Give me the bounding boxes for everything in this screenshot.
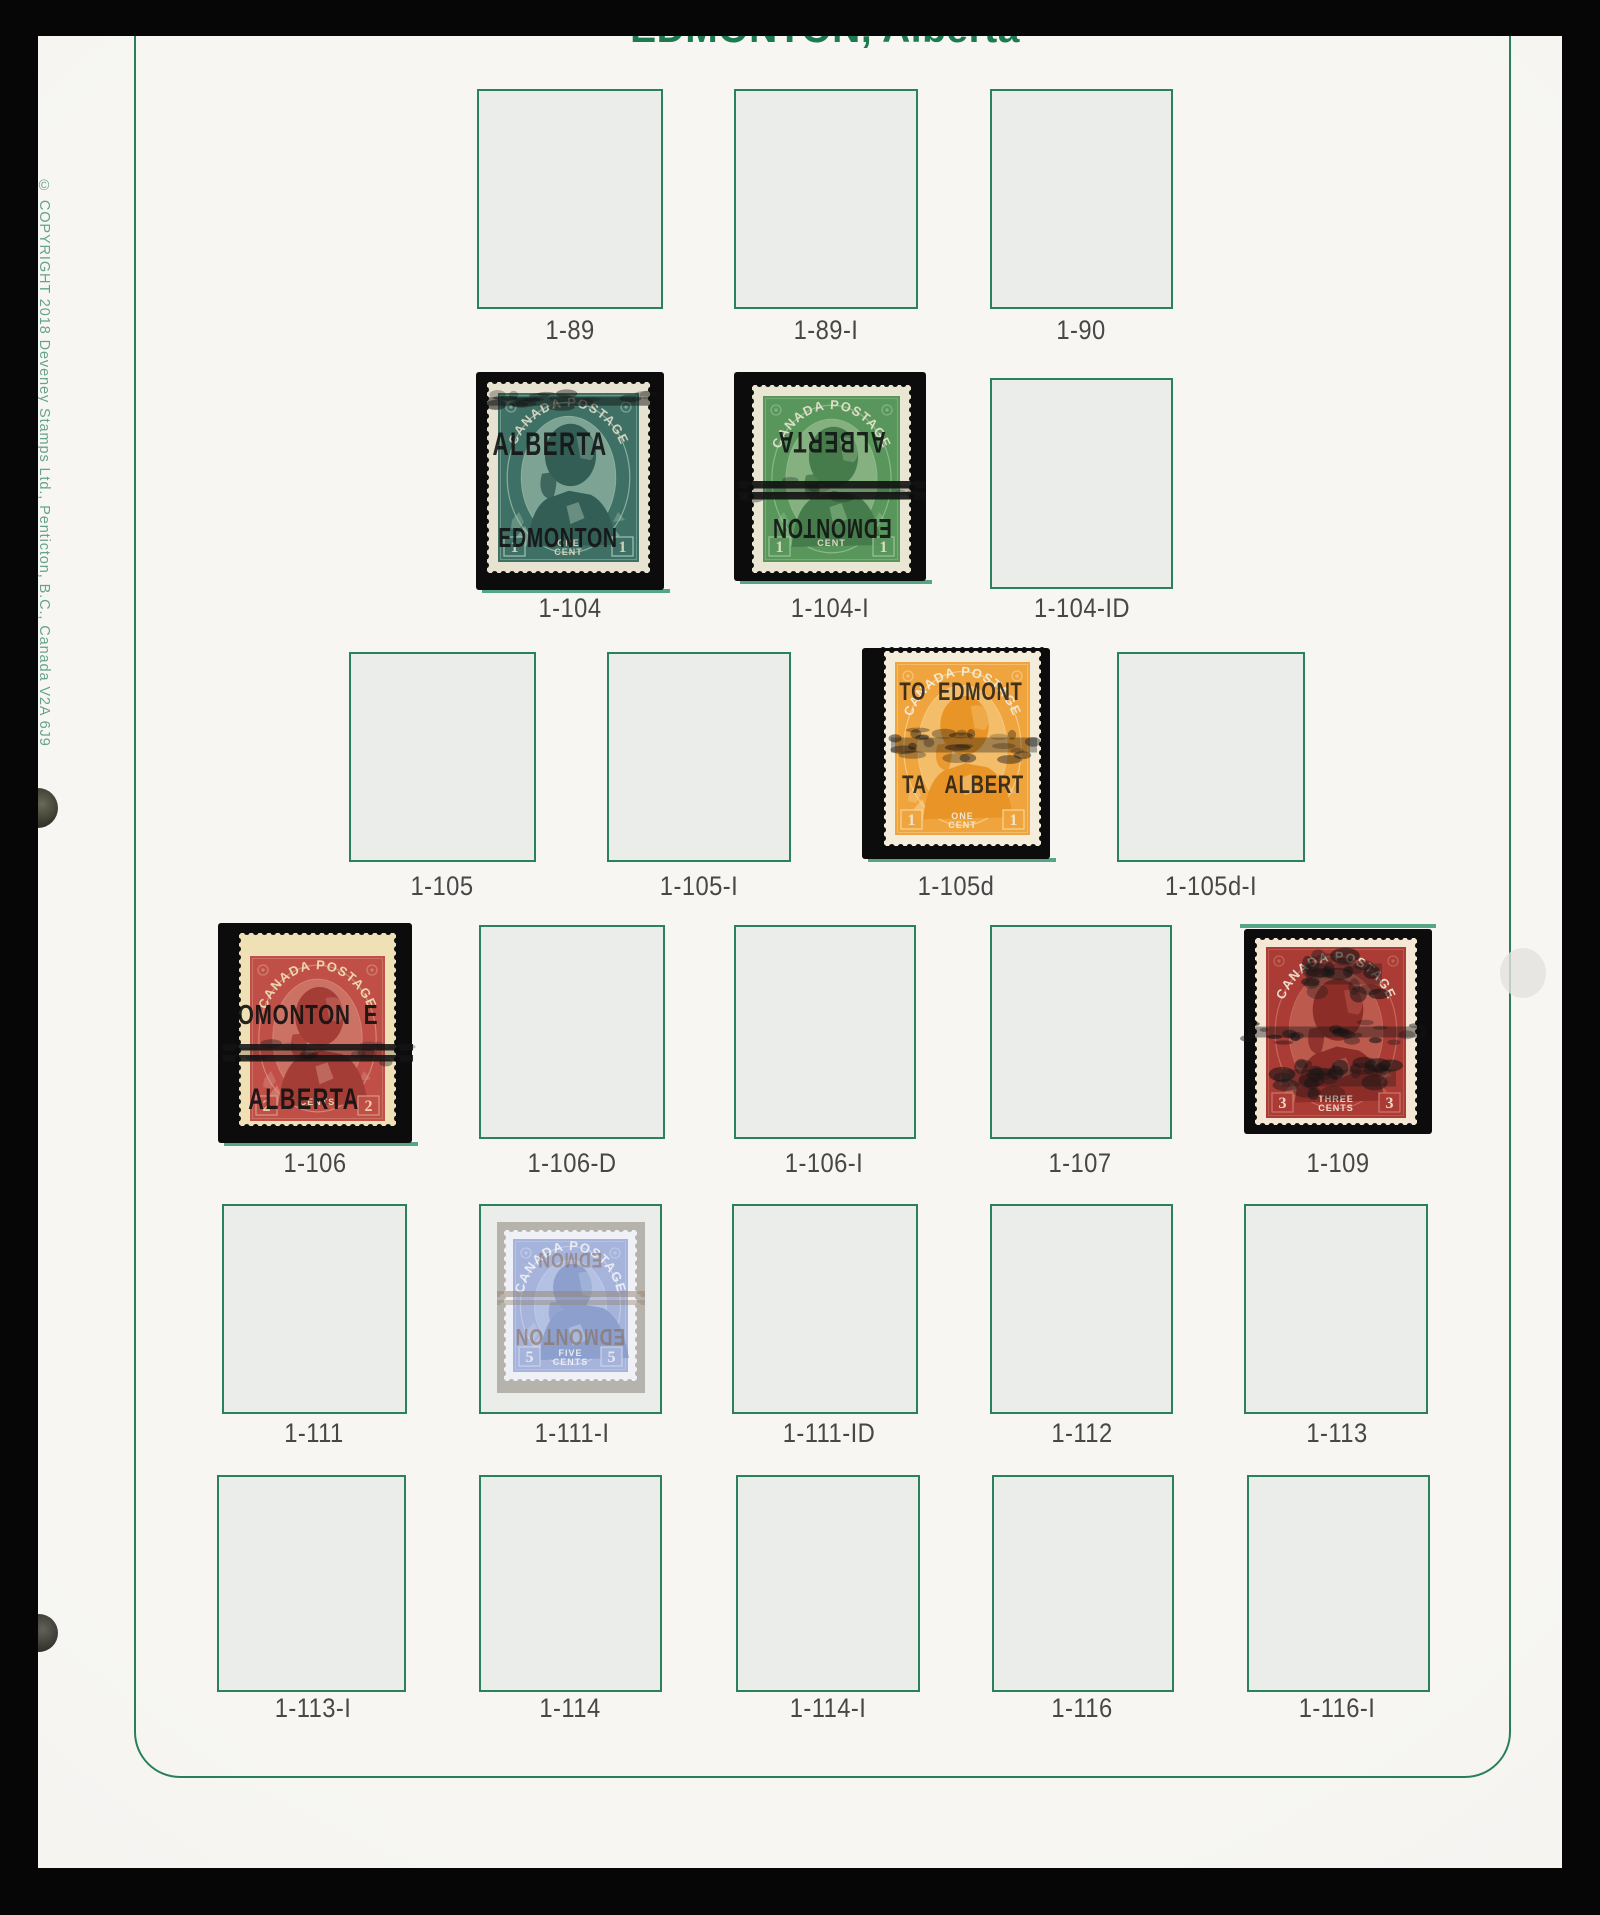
svg-text:3: 3 xyxy=(1279,1095,1287,1112)
svg-text:ALBERTA: ALBERTA xyxy=(492,426,607,462)
svg-text:5: 5 xyxy=(526,1349,534,1366)
svg-text:EDMONTON: EDMONTON xyxy=(772,512,892,543)
svg-text:2: 2 xyxy=(365,1098,373,1115)
svg-text:EDMONTON: EDMONTON xyxy=(498,523,618,554)
svg-text:ALBERTA: ALBERTA xyxy=(777,425,885,457)
svg-text:TA ALBERT: TA ALBERT xyxy=(902,770,1024,798)
svg-text:OMONTON E: OMONTON E xyxy=(238,1000,379,1031)
svg-text:5: 5 xyxy=(608,1349,616,1366)
svg-text:EDMONTON: EDMONTON xyxy=(515,1323,625,1349)
svg-text:TO EDMONT: TO EDMONT xyxy=(899,677,1022,705)
svg-text:3: 3 xyxy=(1386,1095,1394,1112)
svg-text:ALBERTA: ALBERTA xyxy=(248,1081,360,1115)
svg-text:ONECENT: ONECENT xyxy=(948,811,977,830)
svg-text:1: 1 xyxy=(908,812,916,829)
svg-text:1: 1 xyxy=(619,539,627,556)
svg-text:1: 1 xyxy=(1010,812,1018,829)
svg-text:EDMON: EDMON xyxy=(538,1249,603,1272)
